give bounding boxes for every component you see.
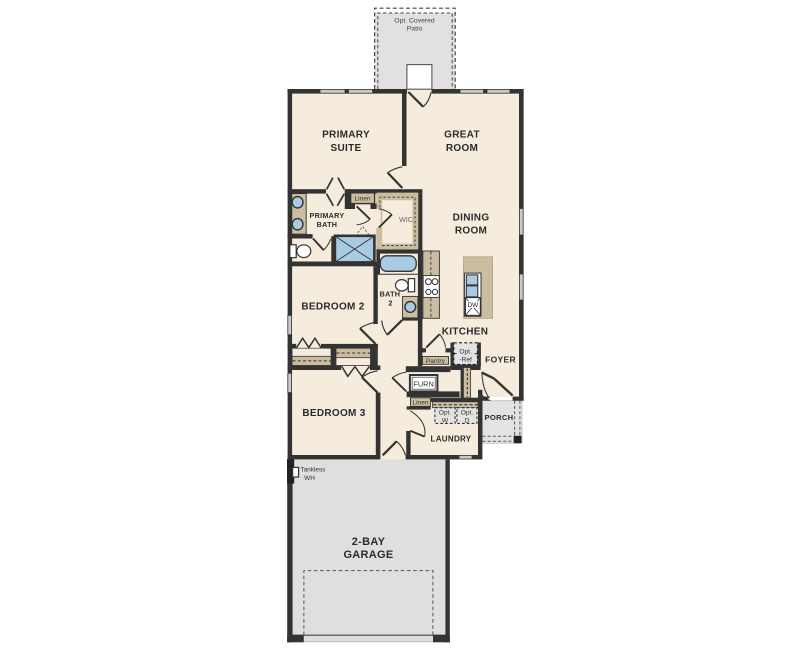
svg-text:SUITE: SUITE bbox=[331, 143, 362, 154]
svg-text:DW: DW bbox=[467, 302, 479, 309]
svg-text:Linen: Linen bbox=[412, 400, 428, 407]
svg-text:GARAGE: GARAGE bbox=[343, 549, 393, 561]
svg-text:Linen: Linen bbox=[355, 196, 371, 203]
svg-text:WIC: WIC bbox=[399, 215, 413, 224]
svg-text:BATH: BATH bbox=[380, 289, 401, 298]
svg-text:ROOM: ROOM bbox=[455, 226, 487, 237]
svg-text:FOYER: FOYER bbox=[485, 355, 516, 365]
svg-text:KITCHEN: KITCHEN bbox=[442, 327, 489, 338]
svg-text:Pantry: Pantry bbox=[426, 358, 446, 365]
svg-text:GREAT: GREAT bbox=[444, 130, 480, 141]
svg-text:Patio: Patio bbox=[407, 26, 423, 33]
svg-text:BATH: BATH bbox=[317, 220, 338, 229]
svg-text:-Ref: -Ref bbox=[459, 356, 472, 363]
svg-text:FURN: FURN bbox=[413, 379, 434, 388]
svg-text:2: 2 bbox=[388, 298, 392, 307]
svg-text:Opt.: Opt. bbox=[459, 348, 472, 355]
svg-text:WH: WH bbox=[304, 475, 315, 482]
svg-text:Opt.: Opt. bbox=[439, 409, 452, 416]
svg-text:2-BAY: 2-BAY bbox=[352, 536, 386, 548]
svg-text:LAUNDRY: LAUNDRY bbox=[431, 435, 472, 444]
svg-text:W: W bbox=[442, 417, 449, 424]
svg-text:ROOM: ROOM bbox=[446, 143, 478, 154]
svg-text:PRIMARY: PRIMARY bbox=[310, 211, 345, 220]
svg-text:DINING: DINING bbox=[453, 213, 490, 224]
svg-text:BEDROOM 3: BEDROOM 3 bbox=[302, 408, 365, 419]
svg-text:Opt.: Opt. bbox=[461, 409, 474, 416]
svg-text:PORCH: PORCH bbox=[485, 413, 514, 422]
svg-text:Opt. Covered: Opt. Covered bbox=[394, 18, 435, 25]
svg-text:D: D bbox=[465, 417, 470, 424]
svg-text:BEDROOM 2: BEDROOM 2 bbox=[301, 302, 364, 313]
svg-text:Tankless: Tankless bbox=[301, 467, 326, 474]
svg-text:PRIMARY: PRIMARY bbox=[322, 130, 370, 141]
